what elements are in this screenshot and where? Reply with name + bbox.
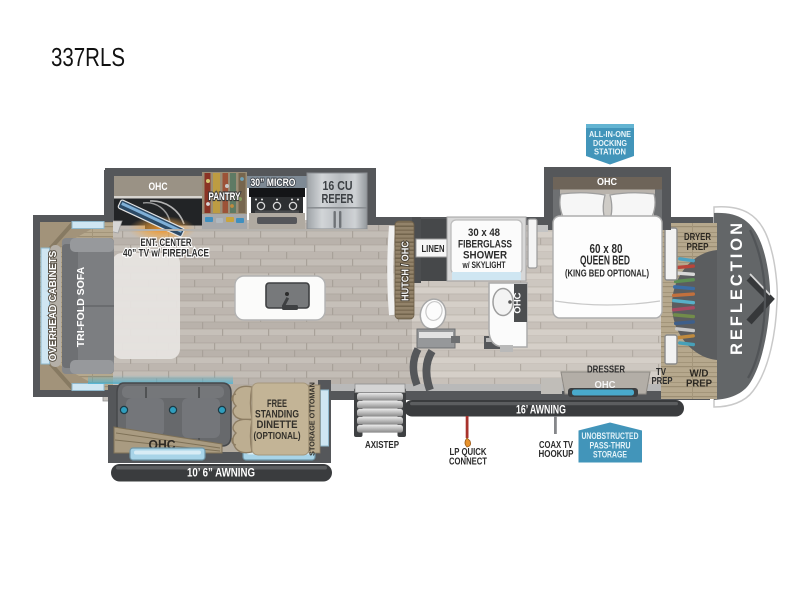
svg-text:OHC: OHC: [597, 176, 617, 188]
svg-text:OHC: OHC: [595, 380, 616, 391]
svg-text:16 CU: 16 CU: [323, 179, 353, 193]
svg-text:HOOKUP: HOOKUP: [539, 449, 574, 460]
svg-text:PREP: PREP: [687, 241, 709, 253]
svg-text:(KING BED OPTIONAL): (KING BED OPTIONAL): [565, 269, 649, 280]
svg-text:OHC: OHC: [513, 292, 524, 313]
svg-text:STORAGE OTTOMAN: STORAGE OTTOMAN: [308, 382, 317, 456]
svg-text:16’ AWNING: 16’ AWNING: [516, 403, 566, 417]
svg-text:QUEEN BED: QUEEN BED: [580, 254, 630, 268]
svg-text:30” MICRO: 30” MICRO: [251, 177, 296, 189]
svg-text:PANTRY: PANTRY: [209, 191, 241, 203]
svg-text:HUTCH / OHC: HUTCH / OHC: [400, 241, 412, 301]
svg-text:STORAGE: STORAGE: [593, 450, 627, 460]
svg-text:w/ SKYLIGHT: w/ SKYLIGHT: [462, 260, 506, 270]
svg-text:CONNECT: CONNECT: [449, 456, 487, 468]
svg-text:OVERHEAD CABINETS: OVERHEAD CABINETS: [48, 250, 59, 361]
svg-text:PREP: PREP: [652, 376, 673, 387]
svg-text:AXISTEP: AXISTEP: [365, 439, 399, 451]
svg-text:DRESSER: DRESSER: [587, 364, 625, 376]
svg-text:10’ 6” AWNING: 10’ 6” AWNING: [187, 466, 255, 480]
svg-text:DINETTE: DINETTE: [257, 419, 298, 431]
svg-text:337RLS: 337RLS: [51, 42, 125, 72]
svg-text:REFER: REFER: [322, 192, 354, 206]
svg-text:PREP: PREP: [686, 378, 712, 390]
svg-text:OHC: OHC: [149, 181, 168, 193]
svg-text:STATION: STATION: [594, 147, 626, 157]
svg-text:TRI-FOLD SOFA: TRI-FOLD SOFA: [75, 266, 87, 347]
svg-text:30 x 48: 30 x 48: [468, 227, 500, 239]
svg-text:LINEN: LINEN: [422, 244, 445, 255]
svg-text:REFLECTION: REFLECTION: [728, 221, 746, 355]
svg-text:UNOBSTRUCTED: UNOBSTRUCTED: [582, 431, 639, 441]
svg-text:40” TV w/ FIREPLACE: 40” TV w/ FIREPLACE: [123, 248, 209, 260]
svg-text:(OPTIONAL): (OPTIONAL): [254, 431, 301, 442]
